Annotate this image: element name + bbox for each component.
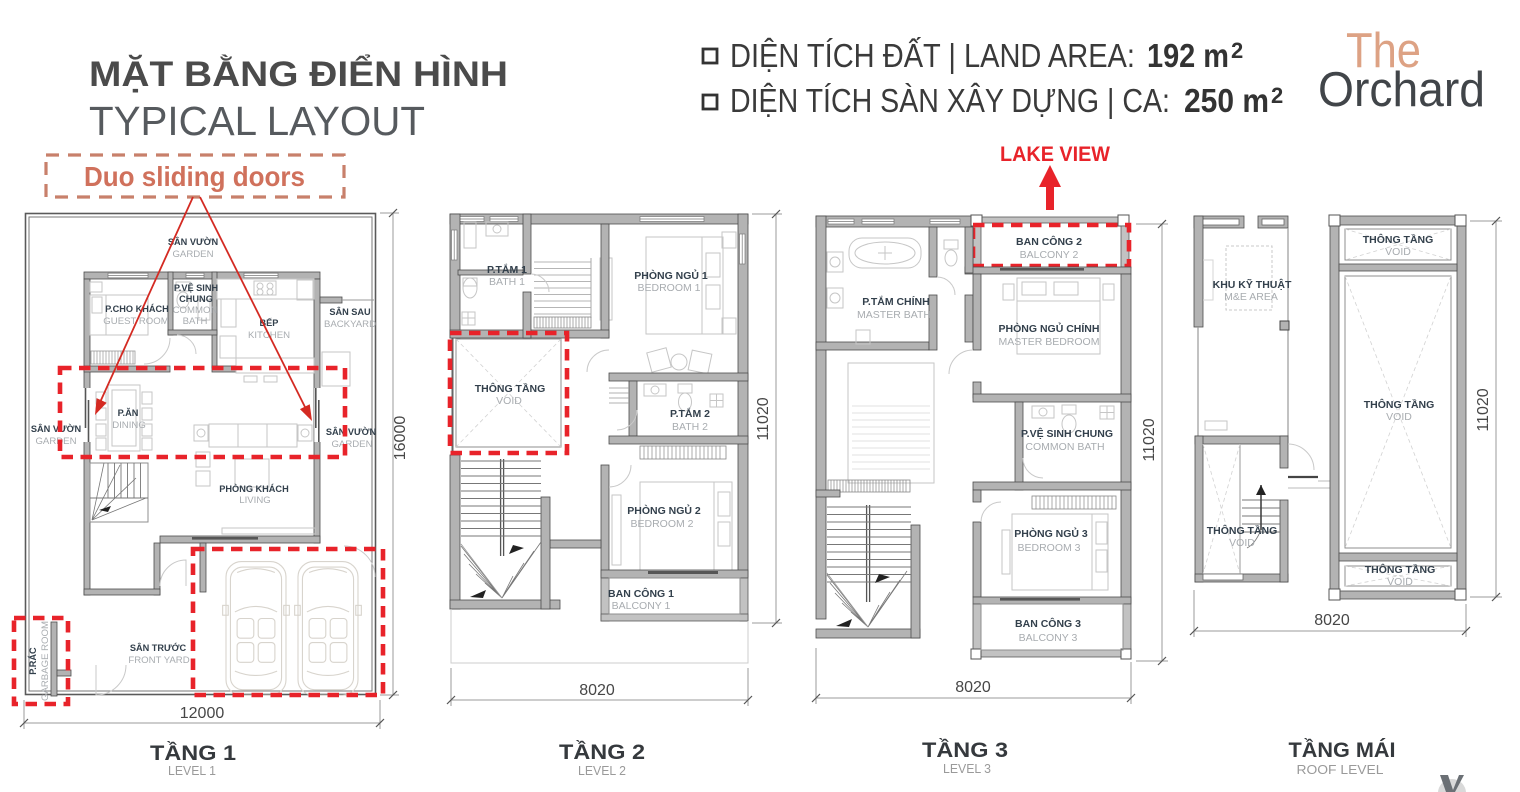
svg-text:BEDROOM 3: BEDROOM 3	[1017, 542, 1080, 554]
svg-text:THÔNG TẦNG: THÔNG TẦNG	[475, 382, 546, 395]
svg-text:LIVING: LIVING	[239, 495, 270, 506]
svg-text:VOID: VOID	[1229, 537, 1255, 549]
svg-text:VOID: VOID	[1385, 246, 1411, 258]
svg-text:THÔNG TẦNG: THÔNG TẦNG	[1364, 398, 1435, 411]
svg-text:PHÒNG NGỦ CHÍNH: PHÒNG NGỦ CHÍNH	[999, 322, 1100, 335]
svg-text:BATH 1: BATH 1	[489, 276, 525, 288]
svg-text:KHU KỸ THUẬT: KHU KỸ THUẬT	[1213, 278, 1292, 291]
svg-text:BEDROOM 1: BEDROOM 1	[637, 282, 700, 294]
svg-text:2: 2	[1231, 38, 1243, 63]
svg-text:LEVEL 3: LEVEL 3	[943, 761, 991, 776]
svg-text:LEVEL 2: LEVEL 2	[578, 763, 626, 778]
svg-text:SÂN VƯỜN: SÂN VƯỜN	[326, 426, 377, 437]
svg-text:DIỆN TÍCH ĐẤT | LAND AREA:: DIỆN TÍCH ĐẤT | LAND AREA:	[730, 37, 1135, 74]
svg-text:TẦNG 2: TẦNG 2	[559, 741, 645, 764]
svg-text:THÔNG TẦNG: THÔNG TẦNG	[1363, 233, 1434, 246]
svg-text:P.TẮM CHÍNH: P.TẮM CHÍNH	[862, 295, 929, 308]
svg-text:P.ĂN: P.ĂN	[118, 408, 139, 418]
svg-text:P.CHO KHÁCH: P.CHO KHÁCH	[105, 303, 169, 314]
svg-text:TẦNG 1: TẦNG 1	[150, 742, 236, 765]
svg-text:VOID: VOID	[496, 395, 522, 407]
svg-text:ROOF LEVEL: ROOF LEVEL	[1297, 762, 1384, 777]
svg-text:Orchard: Orchard	[1318, 63, 1485, 117]
svg-text:PHÒNG NGỦ 2: PHÒNG NGỦ 2	[627, 504, 701, 517]
svg-text:192 m: 192 m	[1147, 37, 1229, 74]
svg-text:8020: 8020	[579, 682, 615, 699]
svg-text:BALCONY 2: BALCONY 2	[1020, 249, 1079, 261]
svg-text:DINING: DINING	[112, 420, 146, 431]
svg-text:16000: 16000	[392, 416, 409, 461]
svg-text:2: 2	[1271, 83, 1283, 108]
svg-text:GARDEN: GARDEN	[172, 249, 213, 260]
svg-text:PHÒNG NGỦ 1: PHÒNG NGỦ 1	[634, 269, 708, 282]
svg-text:BACKYARD: BACKYARD	[324, 319, 376, 330]
svg-text:BAN CÔNG 3: BAN CÔNG 3	[1015, 617, 1081, 630]
svg-text:MASTER BATH: MASTER BATH	[857, 309, 931, 321]
svg-text:MASTER BEDROOM: MASTER BEDROOM	[999, 336, 1100, 348]
svg-text:GARDEN: GARDEN	[35, 436, 76, 447]
svg-text:THÔNG TẦNG: THÔNG TẦNG	[1207, 524, 1278, 537]
svg-text:SÂN SAU: SÂN SAU	[329, 306, 371, 317]
svg-text:8020: 8020	[1314, 612, 1350, 629]
svg-text:COMMON: COMMON	[173, 305, 218, 316]
svg-text:P.RÁC: P.RÁC	[27, 647, 38, 675]
svg-text:BEDROOM 2: BEDROOM 2	[630, 518, 693, 530]
svg-text:COMMON BATH: COMMON BATH	[1025, 441, 1104, 453]
svg-text:DIỆN TÍCH SÀN XÂY DỰNG | CA:: DIỆN TÍCH SÀN XÂY DỰNG | CA:	[730, 82, 1170, 119]
svg-text:TYPICAL LAYOUT: TYPICAL LAYOUT	[89, 98, 425, 144]
svg-text:MẶT BẰNG ĐIỂN HÌNH: MẶT BẰNG ĐIỂN HÌNH	[89, 54, 508, 94]
svg-text:M&E AREA: M&E AREA	[1224, 291, 1278, 303]
svg-text:BAN CÔNG 2: BAN CÔNG 2	[1016, 235, 1082, 248]
svg-text:Duo sliding doors: Duo sliding doors	[84, 161, 305, 192]
svg-text:BALCONY 1: BALCONY 1	[612, 600, 671, 612]
svg-text:FRONT YARD: FRONT YARD	[128, 655, 189, 666]
svg-text:11020: 11020	[755, 397, 772, 440]
svg-text:VOID: VOID	[1387, 576, 1413, 588]
svg-text:SÂN TRƯỚC: SÂN TRƯỚC	[130, 642, 187, 653]
svg-text:BATH: BATH	[183, 316, 208, 327]
svg-text:CHUNG: CHUNG	[179, 294, 213, 304]
svg-text:8020: 8020	[955, 679, 991, 696]
svg-text:SÂN VƯỜN: SÂN VƯỜN	[31, 423, 82, 434]
svg-text:GARBAGE ROOM: GARBAGE ROOM	[40, 621, 51, 701]
svg-text:P.TẮM 1: P.TẮM 1	[487, 263, 527, 276]
svg-text:THÔNG TẦNG: THÔNG TẦNG	[1365, 563, 1436, 576]
svg-text:BALCONY 3: BALCONY 3	[1019, 632, 1078, 644]
svg-text:TẦNG MÁI: TẦNG MÁI	[1289, 739, 1396, 762]
svg-text:BATH 2: BATH 2	[672, 421, 708, 433]
svg-text:LEVEL 1: LEVEL 1	[168, 763, 216, 778]
svg-text:P.TẮM 2: P.TẮM 2	[670, 407, 710, 420]
svg-text:250 m: 250 m	[1184, 82, 1269, 119]
svg-text:LAKE VIEW: LAKE VIEW	[1000, 143, 1110, 166]
svg-text:PHÒNG NGỦ 3: PHÒNG NGỦ 3	[1014, 527, 1088, 540]
svg-text:P.VỆ SINH CHUNG: P.VỆ SINH CHUNG	[1021, 427, 1113, 440]
svg-text:BAN CÔNG 1: BAN CÔNG 1	[608, 587, 674, 600]
svg-text:12000: 12000	[180, 705, 225, 722]
svg-text:11020: 11020	[1141, 418, 1158, 461]
svg-text:11020: 11020	[1475, 388, 1492, 431]
svg-text:TẦNG 3: TẦNG 3	[922, 739, 1008, 762]
svg-text:GARDEN: GARDEN	[331, 439, 372, 450]
svg-text:VOID: VOID	[1386, 411, 1412, 423]
svg-text:P.VỆ SINH: P.VỆ SINH	[174, 282, 219, 293]
svg-text:PHÒNG KHÁCH: PHÒNG KHÁCH	[219, 483, 289, 494]
